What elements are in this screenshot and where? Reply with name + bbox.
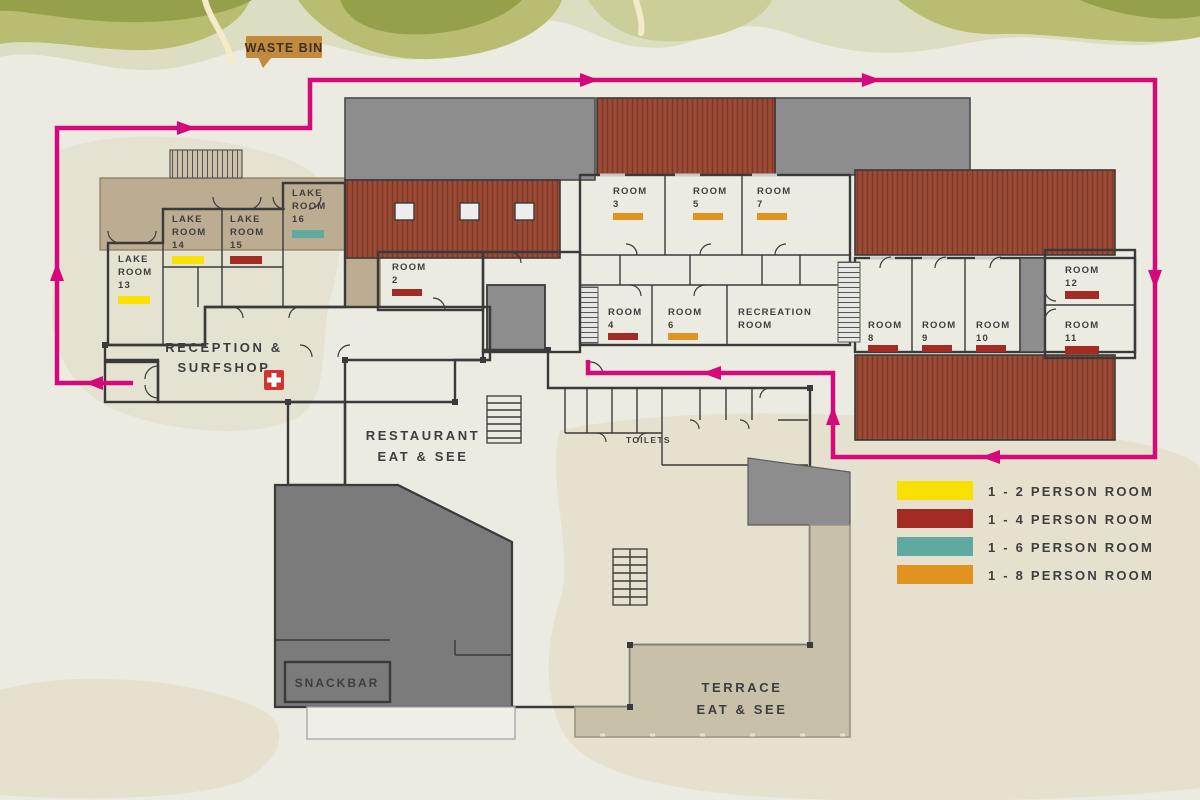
svg-text:ROOM3: ROOM3 (613, 186, 647, 210)
room-4: ROOM4 (608, 307, 642, 340)
svg-text:ROOM9: ROOM9 (922, 320, 956, 344)
legend-label: 1 - 6 PERSON ROOM (988, 540, 1154, 555)
svg-text:ROOM2: ROOM2 (392, 262, 426, 286)
legend-swatch (897, 565, 973, 584)
room-type-bar (118, 296, 150, 304)
room-8: ROOM8 (868, 320, 902, 352)
room-type-bar (230, 256, 262, 264)
room-2: ROOM2 (392, 262, 426, 296)
gray-roof (775, 98, 970, 175)
svg-text:ROOM10: ROOM10 (976, 320, 1010, 344)
roof-window (395, 203, 414, 220)
first-aid-icon (264, 370, 284, 390)
staircase-icon (487, 396, 521, 443)
svg-text:ROOM6: ROOM6 (668, 307, 702, 331)
room-5: ROOM5 (693, 186, 727, 220)
center-rooms-building (580, 175, 850, 345)
legend-label: 1 - 8 PERSON ROOM (988, 568, 1154, 583)
floor-plan-map: RECEPTION &SURFSHOP RESTAURANTEAT & SEE … (0, 0, 1200, 800)
svg-text:ROOM12: ROOM12 (1065, 265, 1099, 289)
room-3: ROOM3 (613, 186, 647, 220)
room-7: ROOM7 (757, 186, 791, 220)
toilets-label: TOILETS (626, 435, 671, 445)
red-roof (855, 355, 1115, 440)
deck-stairs-icon (170, 150, 242, 178)
route-arrow-left-icon (702, 366, 721, 380)
kitchen-building: SNACKBAR (275, 485, 515, 739)
vegetation (0, 0, 1200, 70)
waste-bin-label: WASTE BIN (245, 41, 323, 55)
room-type-bar (1065, 291, 1099, 299)
stair-block (487, 285, 545, 350)
svg-text:RECREATIONROOM: RECREATIONROOM (738, 307, 812, 331)
svg-text:ROOM4: ROOM4 (608, 307, 642, 331)
room-type-bar (613, 213, 643, 220)
room-type-bar (757, 213, 787, 220)
room-12: ROOM12 (1065, 265, 1099, 299)
legend-swatch (897, 509, 973, 528)
legend-label: 1 - 2 PERSON ROOM (988, 484, 1154, 499)
svg-text:ROOM11: ROOM11 (1065, 320, 1099, 344)
legend-item-1-6: 1 - 6 PERSON ROOM (897, 537, 1154, 556)
legend-item-1-2: 1 - 2 PERSON ROOM (897, 481, 1154, 500)
waste-bin-badge: WASTE BIN (245, 36, 323, 68)
recreation-room: RECREATIONROOM (738, 307, 812, 331)
room-type-bar (976, 345, 1006, 352)
room-11: ROOM11 (1065, 320, 1099, 354)
gray-roof (345, 98, 595, 180)
room-type-bar (868, 345, 898, 352)
legend-item-1-8: 1 - 8 PERSON ROOM (897, 565, 1154, 584)
room-type-bar (1065, 346, 1099, 354)
legend-item-1-4: 1 - 4 PERSON ROOM (897, 509, 1154, 528)
svg-text:ROOM8: ROOM8 (868, 320, 902, 344)
legend-swatch (897, 481, 973, 500)
room-type-bar (172, 256, 204, 264)
legend-label: 1 - 4 PERSON ROOM (988, 512, 1154, 527)
room-9: ROOM9 (922, 320, 956, 352)
svg-text:ROOM7: ROOM7 (757, 186, 791, 210)
room-type-bar (392, 289, 422, 296)
room-10: ROOM10 (976, 320, 1010, 352)
room-type-bar (608, 333, 638, 340)
room-type-bar (693, 213, 723, 220)
route-arrow-right-icon (580, 73, 599, 87)
route-arrow-right-icon (177, 121, 196, 135)
red-roof (855, 170, 1115, 255)
legend-swatch (897, 537, 973, 556)
roof-window (460, 203, 479, 220)
snackbar-label: SNACKBAR (295, 676, 380, 690)
route-arrow-right-icon (862, 73, 881, 87)
restaurant-label: RESTAURANTEAT & SEE (366, 428, 481, 464)
room-type-bar (292, 230, 324, 238)
room-6: ROOM6 (668, 307, 702, 340)
stairwell-icon (838, 262, 860, 342)
small-terrace (307, 707, 515, 739)
route-arrow-down-icon (1148, 270, 1162, 289)
roof-window (515, 203, 534, 220)
room-type-bar (668, 333, 698, 340)
svg-text:ROOM5: ROOM5 (693, 186, 727, 210)
red-roof (597, 98, 775, 175)
room-type-bar (922, 345, 952, 352)
stairwell-icon (580, 287, 598, 343)
